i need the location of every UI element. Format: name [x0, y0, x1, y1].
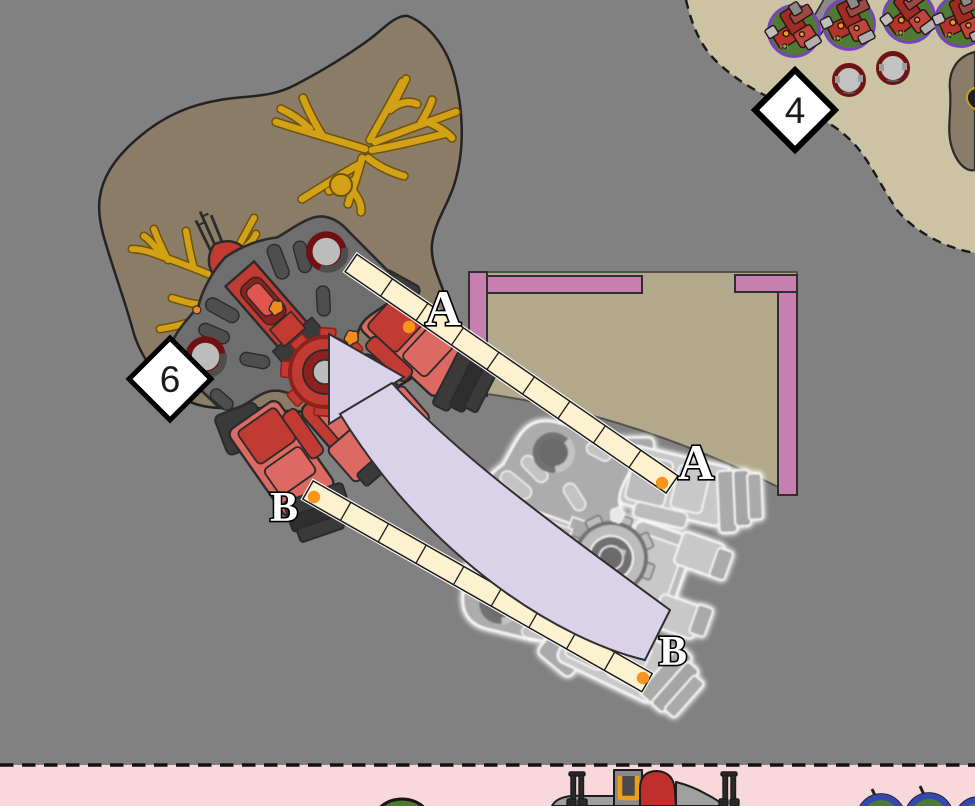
svg-text:B: B: [659, 629, 687, 675]
svg-text:6: 6: [160, 359, 181, 400]
svg-text:4: 4: [785, 90, 806, 131]
svg-text:A: A: [678, 434, 714, 490]
svg-text:A: A: [425, 280, 461, 336]
svg-text:B: B: [270, 485, 298, 531]
